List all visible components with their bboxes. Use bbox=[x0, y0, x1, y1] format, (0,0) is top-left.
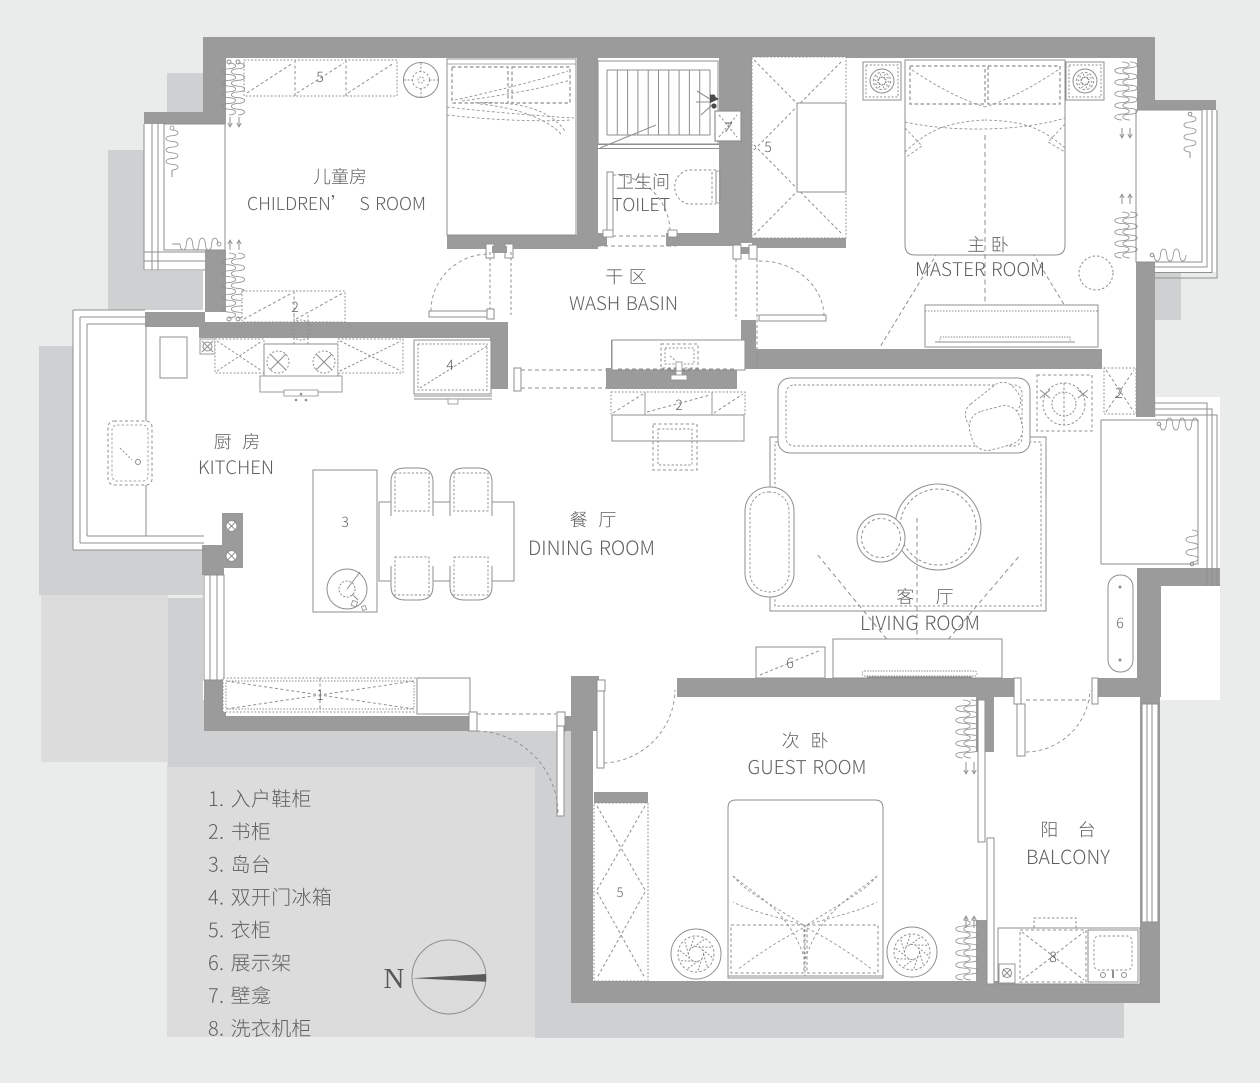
svg-text:N: N bbox=[384, 963, 405, 995]
